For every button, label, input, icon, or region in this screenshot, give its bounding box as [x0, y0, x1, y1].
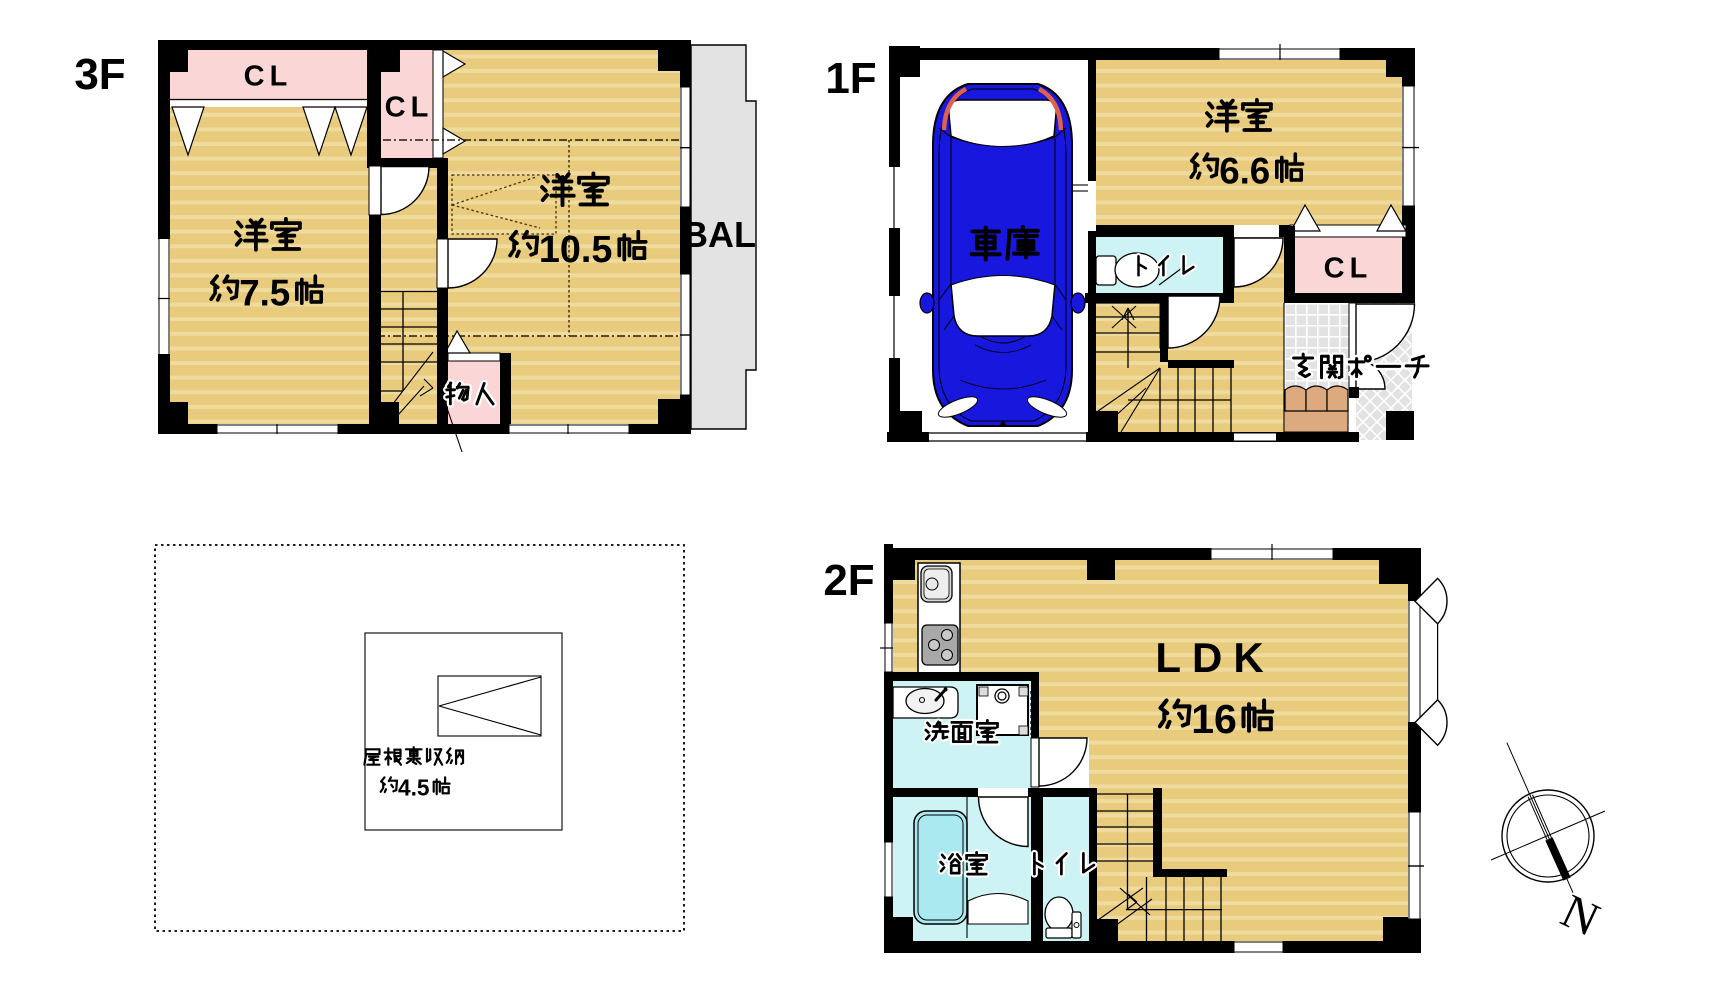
svg-text:10.5: 10.5: [539, 229, 613, 271]
svg-text:CL: CL: [385, 91, 434, 123]
svg-text:16: 16: [1191, 696, 1237, 742]
svg-text:1F: 1F: [825, 54, 876, 103]
svg-text:4.5: 4.5: [398, 775, 430, 801]
svg-text:2F: 2F: [823, 556, 874, 605]
svg-text:7.5: 7.5: [239, 272, 290, 313]
svg-text:CL: CL: [1324, 252, 1373, 284]
svg-text:3F: 3F: [74, 50, 125, 99]
svg-text:BAL: BAL: [682, 214, 756, 255]
svg-text:LDK: LDK: [1155, 634, 1274, 681]
svg-text:CL: CL: [244, 60, 293, 92]
svg-text:6.6: 6.6: [1219, 150, 1270, 191]
